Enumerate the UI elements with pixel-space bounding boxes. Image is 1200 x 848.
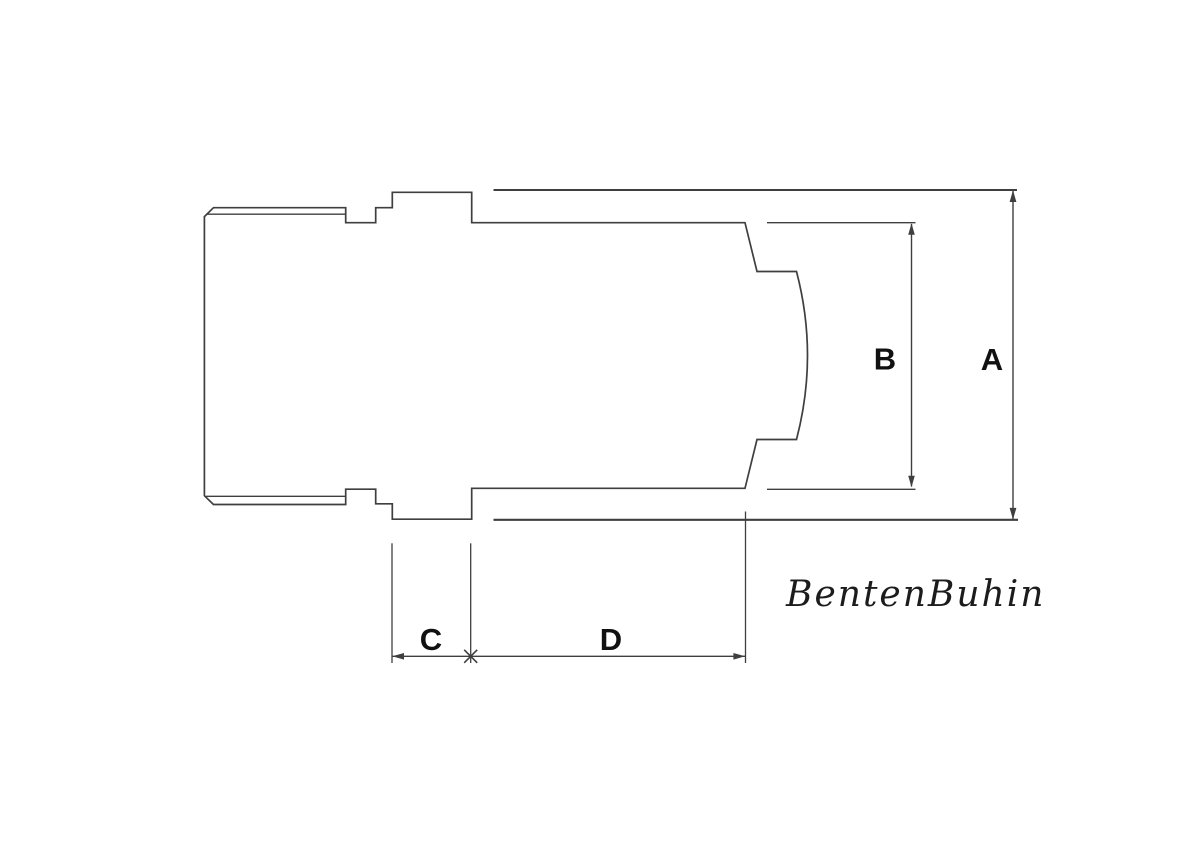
- dim-label-a: A: [981, 342, 1003, 377]
- drawing-canvas: A B C D BentenBuhin: [0, 0, 1200, 848]
- dim-a-arrow-up-icon: [1010, 190, 1017, 202]
- dim-b-arrow-down-icon: [908, 476, 915, 488]
- dim-label-b: B: [874, 342, 896, 377]
- dim-label-d: D: [600, 622, 622, 657]
- technical-drawing: A B C D BentenBuhin: [0, 0, 1200, 848]
- dim-d-arrow-right-icon: [733, 653, 745, 660]
- dim-c-arrow-left-icon: [392, 653, 404, 660]
- brand-signature-text: BentenBuhin: [785, 574, 1045, 615]
- dim-a-arrow-down-icon: [1010, 508, 1017, 520]
- dim-label-c: C: [420, 622, 442, 657]
- dim-b-arrow-up-icon: [908, 223, 915, 235]
- part-outline: [204, 192, 807, 519]
